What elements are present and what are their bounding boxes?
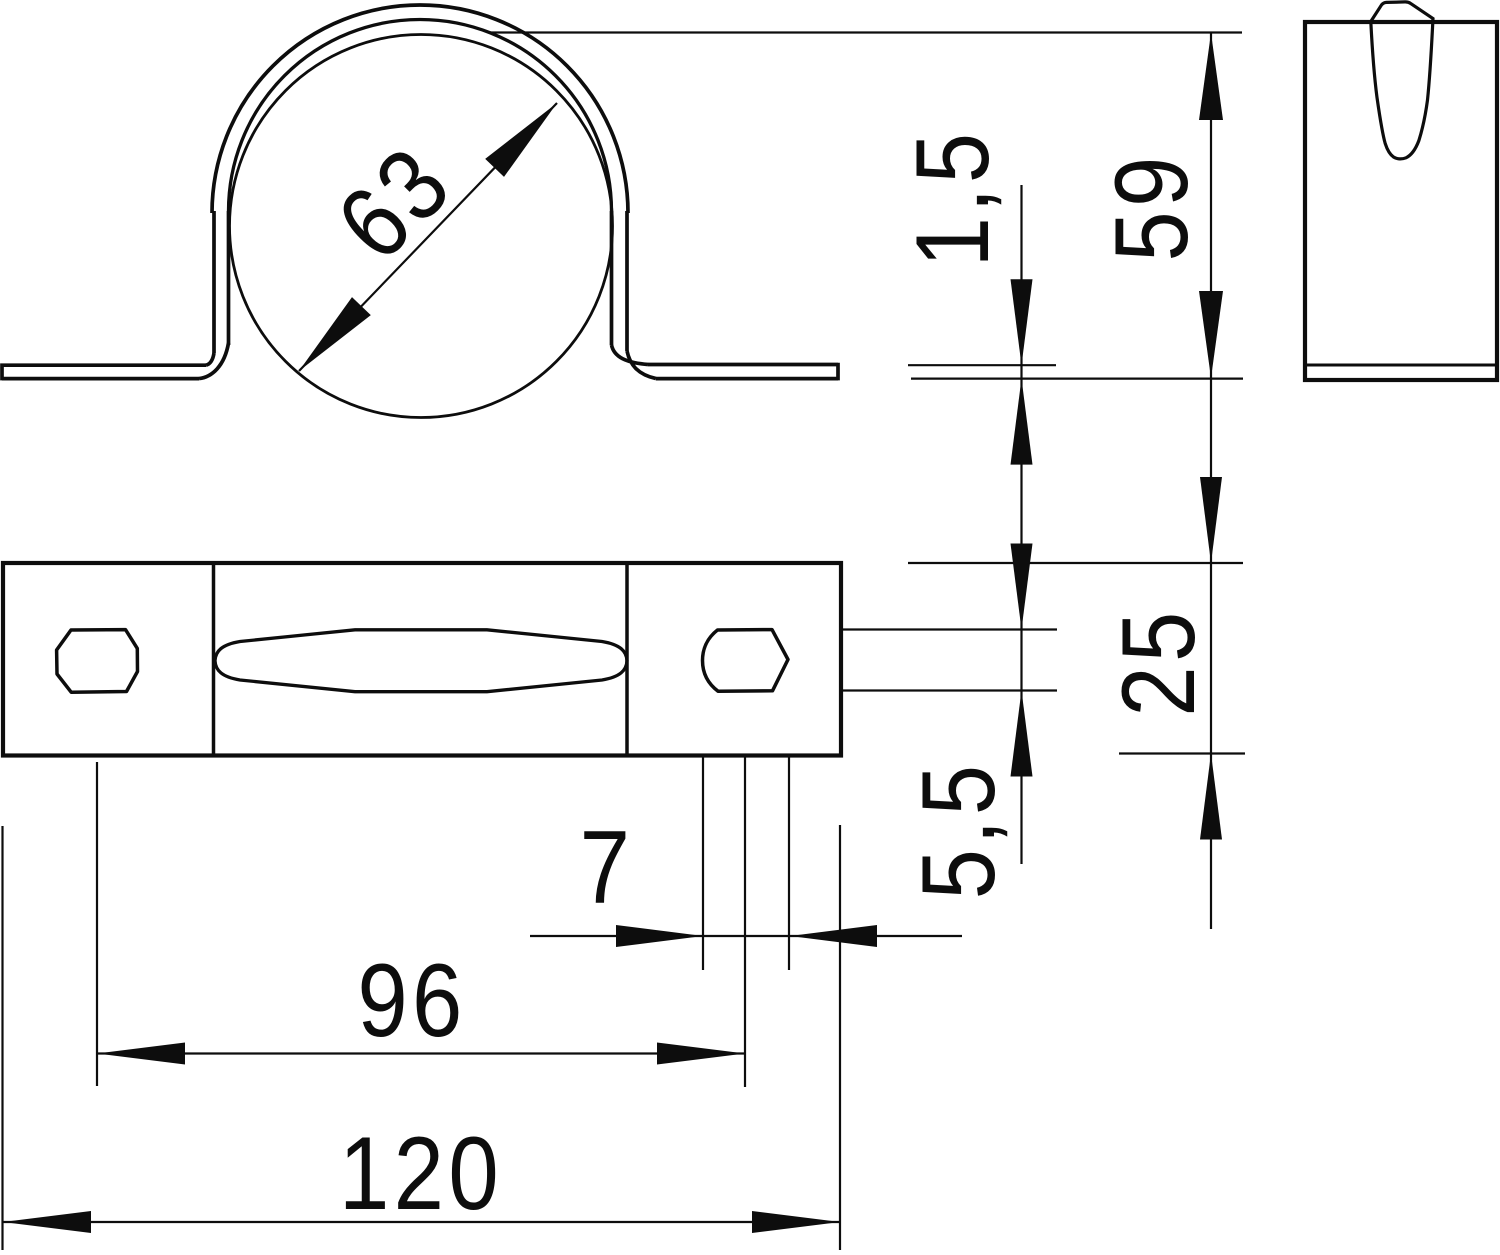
svg-text:7: 7 — [580, 809, 635, 925]
svg-text:5,5: 5,5 — [900, 761, 1016, 900]
svg-text:120: 120 — [339, 1115, 503, 1231]
svg-text:59: 59 — [1093, 152, 1209, 261]
svg-text:1,5: 1,5 — [894, 129, 1010, 268]
svg-text:25: 25 — [1100, 607, 1216, 716]
svg-text:96: 96 — [357, 942, 466, 1058]
